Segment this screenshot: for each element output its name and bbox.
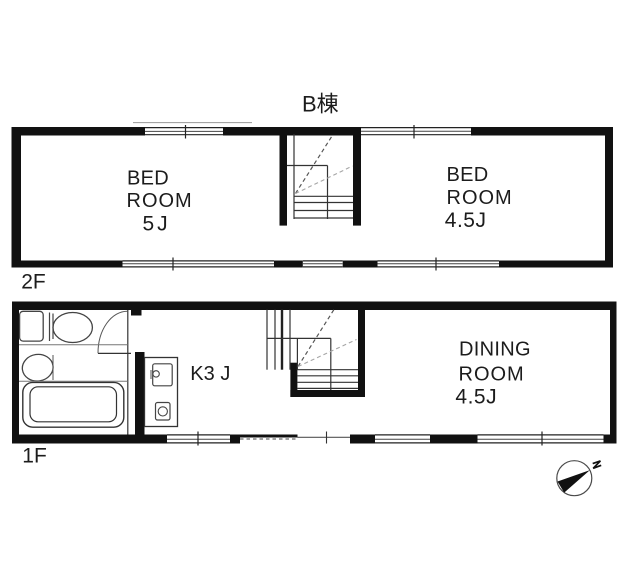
svg-text:4.5J: 4.5J	[445, 209, 487, 232]
svg-text:4.5J: 4.5J	[455, 385, 497, 408]
svg-text:K3 J: K3 J	[190, 363, 230, 385]
svg-text:DINING: DINING	[459, 339, 531, 361]
svg-text:ROOM: ROOM	[447, 187, 513, 209]
svg-text:B棟: B棟	[302, 92, 339, 117]
svg-text:2F: 2F	[21, 271, 46, 294]
svg-text:ROOM: ROOM	[459, 364, 525, 386]
svg-text:BED: BED	[127, 168, 169, 190]
svg-text:5J: 5J	[143, 213, 171, 236]
svg-text:1F: 1F	[22, 444, 47, 467]
svg-text:BED: BED	[447, 164, 489, 186]
svg-text:ROOM: ROOM	[127, 190, 193, 212]
